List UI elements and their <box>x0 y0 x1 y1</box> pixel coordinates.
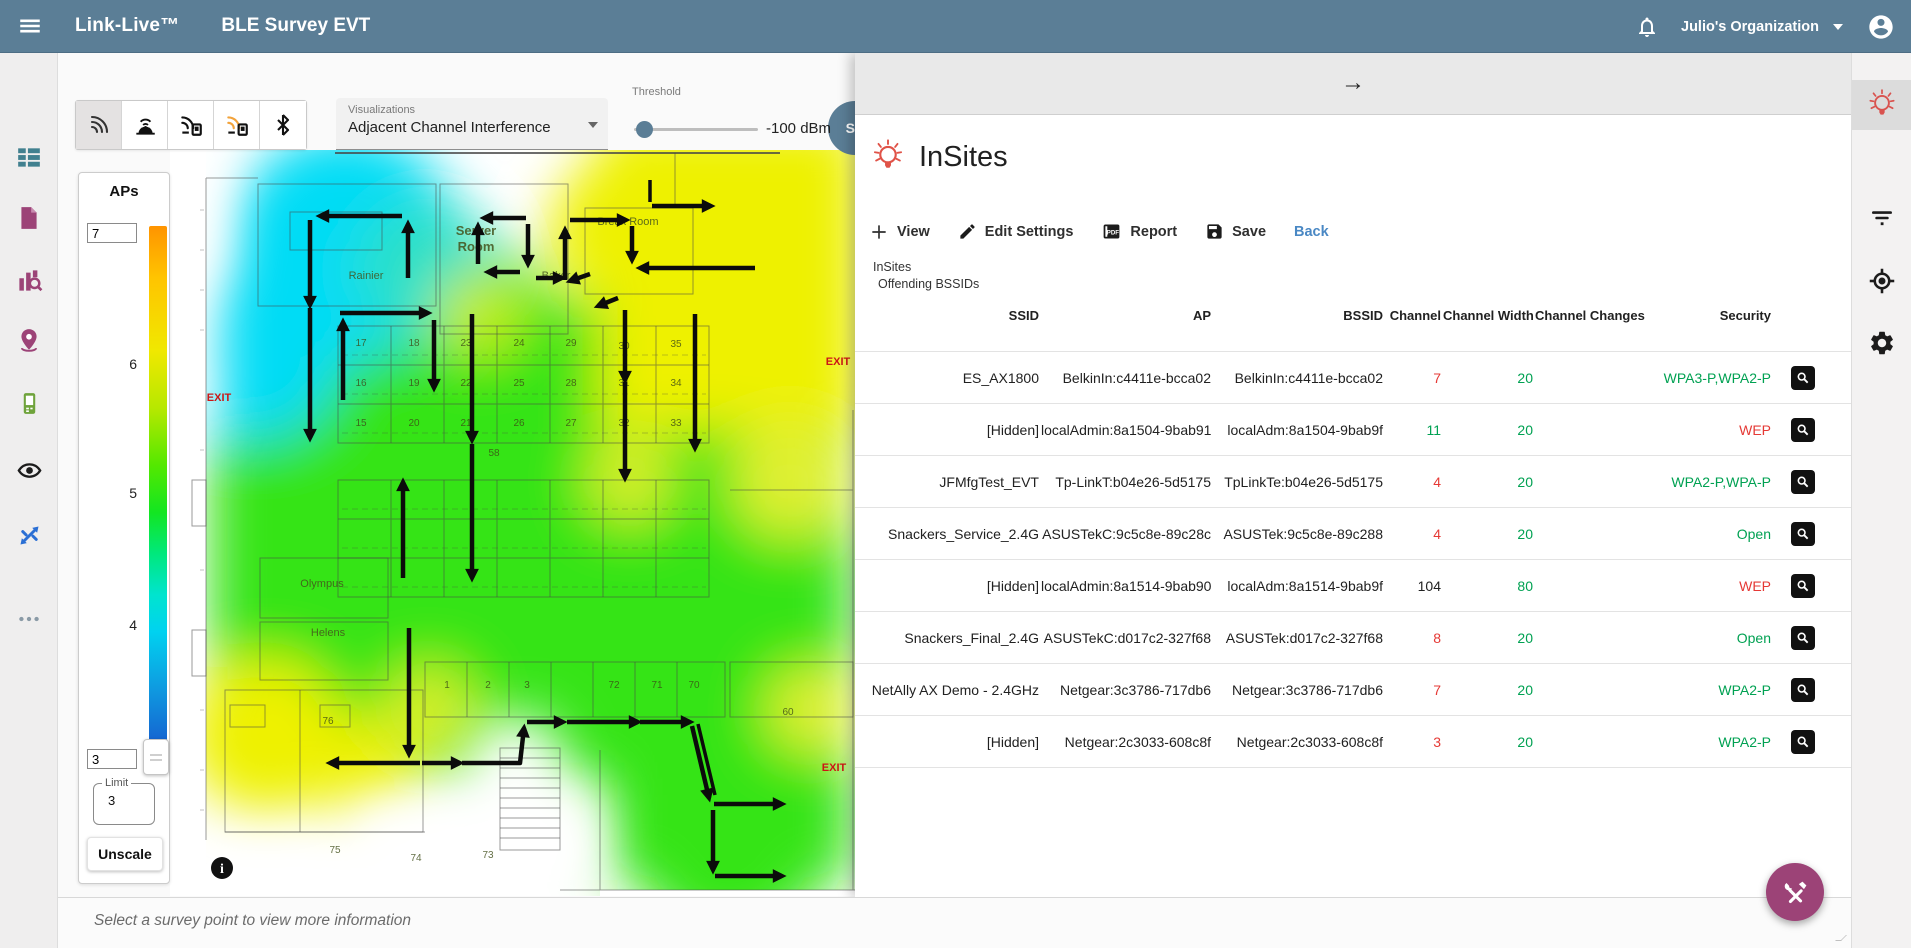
organization-selector[interactable]: Julio's Organization <box>1681 19 1819 35</box>
mode-access-points-button[interactable] <box>122 101 168 149</box>
sites-pin-icon <box>16 327 42 353</box>
cell-security: WPA2-P <box>1641 734 1773 750</box>
breadcrumb-level-1[interactable]: InSites <box>873 259 979 276</box>
save-button[interactable]: Save <box>1205 222 1266 241</box>
visualizations-label: Visualizations <box>348 104 598 116</box>
table-row[interactable]: Snackers_Final_2.4GASUSTekC:d017c2-327f6… <box>855 612 1851 664</box>
magnifier-icon <box>1795 630 1811 646</box>
cell-channel-width: 20 <box>1443 682 1535 698</box>
column-header-ap[interactable]: AP <box>1041 308 1213 323</box>
cell-ap: ASUSTekC:d017c2-327f68 <box>1041 630 1213 646</box>
mode-signal-button[interactable] <box>76 101 122 149</box>
cell-channel-width: 20 <box>1443 526 1535 542</box>
view-button[interactable]: View <box>869 222 930 242</box>
cell-channel-width: 20 <box>1443 474 1535 490</box>
svg-text:34: 34 <box>670 378 682 389</box>
scale-label: 5 <box>129 485 137 501</box>
interference-device-icon <box>224 112 250 138</box>
column-header-channel[interactable]: Channel <box>1385 308 1443 323</box>
cell-ap: localAdmin:8a1504-9bab91 <box>1041 422 1213 438</box>
pdf-report-icon: PDF <box>1101 221 1122 242</box>
cell-channel: 11 <box>1385 422 1443 438</box>
sidebar-item-analysis[interactable] <box>0 260 58 300</box>
cell-bssid: localAdm:8a1504-9bab9f <box>1213 422 1385 438</box>
cell-ssid: Snackers_Service_2.4G <box>869 526 1041 542</box>
inspect-bssid-button[interactable] <box>1791 574 1815 598</box>
svg-text:70: 70 <box>688 680 700 691</box>
bluetooth-icon <box>271 113 295 137</box>
svg-text:Rainier: Rainier <box>349 270 384 282</box>
cell-channel-width: 20 <box>1443 422 1535 438</box>
cell-ssid: [Hidden] <box>869 734 1041 750</box>
caret-down-icon[interactable] <box>1833 24 1843 30</box>
heatmap-color-scale <box>149 226 167 746</box>
cell-ssid: Snackers_Final_2.4G <box>869 630 1041 646</box>
edit-settings-button[interactable]: Edit Settings <box>958 222 1074 241</box>
scale-drag-handle[interactable] <box>143 739 169 775</box>
settings-tool-button[interactable] <box>1852 318 1911 368</box>
aps-panel-title: APs <box>79 183 169 200</box>
document-icon <box>16 205 42 231</box>
sidebar-item-more[interactable] <box>0 599 58 639</box>
limit-label: Limit <box>102 777 131 789</box>
bssid-table-rows: ES_AX1800BelkinIn:c4411e-bcca02BelkinIn:… <box>855 351 1851 768</box>
inspect-bssid-button[interactable] <box>1791 678 1815 702</box>
breadcrumb-level-2: Offending BSSIDs <box>878 276 979 293</box>
discovery-eye-icon <box>16 457 43 484</box>
cell-bssid: Netgear:2c3033-608c8f <box>1213 734 1385 750</box>
cell-security: WEP <box>1641 578 1773 594</box>
app-window: Link-Live™ BLE Survey EVT Julio's Organi… <box>0 0 1911 948</box>
svg-text:76: 76 <box>322 716 334 727</box>
svg-text:75: 75 <box>329 845 341 856</box>
svg-text:71: 71 <box>651 680 663 691</box>
access-point-icon <box>132 112 158 138</box>
svg-text:25: 25 <box>513 378 525 389</box>
column-header-channel-width[interactable]: Channel Width <box>1443 308 1535 323</box>
resize-grip[interactable] <box>1835 935 1847 941</box>
page-title: BLE Survey EVT <box>221 15 370 37</box>
cell-ssid: JFMfgTest_EVT <box>869 474 1041 490</box>
cell-channel: 7 <box>1385 682 1443 698</box>
table-row[interactable]: [Hidden]Netgear:2c3033-608c8fNetgear:2c3… <box>855 716 1851 768</box>
magnifier-icon <box>1795 578 1811 594</box>
brand-title: Link-Live™ <box>75 15 179 37</box>
svg-text:60: 60 <box>782 707 794 718</box>
more-dots-icon <box>16 606 42 632</box>
insites-bulb-icon <box>871 138 905 176</box>
sidebar-item-discovery[interactable] <box>0 450 58 490</box>
back-link[interactable]: Back <box>1294 224 1329 240</box>
cell-bssid: Netgear:3c3786-717db6 <box>1213 682 1385 698</box>
plus-icon <box>869 222 889 242</box>
cell-bssid: ASUSTek:d017c2-327f68 <box>1213 630 1385 646</box>
magnifier-icon <box>1795 526 1811 542</box>
cell-channel: 3 <box>1385 734 1443 750</box>
cell-channel: 8 <box>1385 630 1443 646</box>
menu-icon[interactable] <box>17 13 43 39</box>
cell-ssid: ES_AX1800 <box>869 370 1041 386</box>
status-message: Select a survey point to view more infor… <box>94 912 411 930</box>
svg-text:73: 73 <box>482 850 494 861</box>
locate-tool-button[interactable] <box>1852 256 1911 306</box>
table-row[interactable]: ES_AX1800BelkinIn:c4411e-bcca02BelkinIn:… <box>855 352 1851 404</box>
filter-tool-button[interactable] <box>1852 193 1911 243</box>
insites-tool-button[interactable] <box>1852 80 1911 130</box>
visualization-selected-value: Adjacent Channel Interference <box>348 119 598 136</box>
analysis-icon <box>16 267 43 294</box>
cell-security: Open <box>1641 526 1773 542</box>
chevron-down-icon <box>588 122 598 128</box>
insites-panel: → InSites View Edit Settings <box>855 53 1851 897</box>
magnifier-icon <box>1795 734 1811 750</box>
slider-thumb[interactable] <box>636 121 653 138</box>
inspect-bssid-button[interactable] <box>1791 366 1815 390</box>
svg-text:i: i <box>220 862 224 877</box>
column-header-bssid[interactable]: BSSID <box>1213 308 1385 323</box>
threshold-slider[interactable] <box>634 120 758 138</box>
map-info-icon[interactable]: i <box>211 857 233 879</box>
svg-text:EXIT: EXIT <box>822 762 847 774</box>
svg-text:28: 28 <box>565 378 577 389</box>
autotest-arrows-icon <box>16 522 43 549</box>
svg-text:58: 58 <box>488 448 500 459</box>
sidebar-item-autotest[interactable] <box>0 515 58 555</box>
svg-text:1: 1 <box>444 680 450 691</box>
scale-label: 6 <box>129 356 137 372</box>
svg-text:Helens: Helens <box>311 627 346 639</box>
magnifier-icon <box>1795 682 1811 698</box>
svg-text:2: 2 <box>485 680 491 691</box>
status-bar: Select a survey point to view more infor… <box>58 897 1851 948</box>
sidebar-item-devices[interactable] <box>0 383 58 423</box>
pencil-icon <box>958 222 977 241</box>
top-app-bar: Link-Live™ BLE Survey EVT Julio's Organi… <box>0 0 1911 53</box>
aps-scale-panel: APs 6 5 4 Limit 3 Unscale <box>78 172 170 884</box>
tester-device-icon <box>17 391 42 416</box>
notifications-bell-icon[interactable] <box>1635 15 1659 39</box>
report-button[interactable]: PDF Report <box>1101 221 1177 242</box>
panel-title: InSites <box>919 141 1008 174</box>
cell-ap: Netgear:3c3786-717db6 <box>1041 682 1213 698</box>
dashboard-list-icon <box>16 144 42 170</box>
sidebar-item-sites[interactable] <box>0 320 58 360</box>
collapse-arrow-icon[interactable]: → <box>855 69 1851 97</box>
inspect-bssid-button[interactable] <box>1791 626 1815 650</box>
cell-security: WEP <box>1641 422 1773 438</box>
visualizations-dropdown[interactable]: Visualizations Adjacent Channel Interfer… <box>336 98 608 150</box>
sidebar-item-dashboard[interactable] <box>0 137 58 177</box>
magnifier-icon <box>1795 370 1811 386</box>
tools-icon <box>1782 879 1809 906</box>
signal-icon <box>87 113 111 137</box>
cell-bssid: localAdm:8a1514-9bab9f <box>1213 578 1385 594</box>
cell-channel: 4 <box>1385 526 1443 542</box>
cell-channel: 7 <box>1385 370 1443 386</box>
mode-interference-device-button[interactable] <box>214 101 260 149</box>
cell-ap: BelkinIn:c4411e-bcca02 <box>1041 370 1213 386</box>
svg-text:24: 24 <box>513 338 525 349</box>
svg-text:15: 15 <box>355 418 367 429</box>
cell-ssid: NetAlly AX Demo - 2.4GHz <box>869 682 1041 698</box>
insites-bulb-icon <box>1867 88 1897 122</box>
magnifier-icon <box>1795 474 1811 490</box>
locate-icon <box>1868 267 1896 295</box>
aps-min-input[interactable] <box>87 749 137 769</box>
svg-text:EXIT: EXIT <box>826 356 851 368</box>
threshold-label: Threshold <box>632 86 681 98</box>
cell-bssid: ASUSTek:9c5c8e-89c288 <box>1213 526 1385 542</box>
svg-text:20: 20 <box>408 418 420 429</box>
svg-text:19: 19 <box>408 378 420 389</box>
table-row[interactable]: NetAlly AX Demo - 2.4GHzNetgear:3c3786-7… <box>855 664 1851 716</box>
table-row[interactable]: Snackers_Service_2.4GASUSTekC:9c5c8e-89c… <box>855 508 1851 560</box>
breadcrumb: InSites Offending BSSIDs <box>873 259 979 293</box>
save-icon <box>1205 222 1224 241</box>
table-row[interactable]: JFMfgTest_EVTTp-LinkT:b04e26-5d5175TpLin… <box>855 456 1851 508</box>
cell-channel-width: 80 <box>1443 578 1535 594</box>
cell-bssid: TpLinkTe:b04e26-5d5175 <box>1213 474 1385 490</box>
svg-text:17: 17 <box>355 338 367 349</box>
svg-text:16: 16 <box>355 378 367 389</box>
limit-fieldset: Limit 3 <box>93 777 155 825</box>
cell-channel-width: 20 <box>1443 630 1535 646</box>
filter-icon <box>1869 205 1895 231</box>
cell-channel: 104 <box>1385 578 1443 594</box>
survey-heatmap[interactable]: ServerRoomRainierBakerBreak RoomOlympusH… <box>170 150 855 896</box>
cell-ssid: [Hidden] <box>869 422 1041 438</box>
insites-actions: View Edit Settings PDF Report Save Back <box>869 221 1329 242</box>
cell-channel-width: 20 <box>1443 370 1535 386</box>
column-header-security[interactable]: Security <box>1641 308 1773 323</box>
cell-security: Open <box>1641 630 1773 646</box>
panel-collapse-bar[interactable]: → <box>855 53 1851 115</box>
table-header-row: SSID AP BSSID Channel Channel Width Chan… <box>855 308 1851 323</box>
limit-value: 3 <box>108 793 154 808</box>
svg-text:74: 74 <box>410 853 422 864</box>
inspect-bssid-button[interactable] <box>1791 730 1815 754</box>
cell-ap: localAdmin:8a1514-9bab90 <box>1041 578 1213 594</box>
svg-text:3: 3 <box>524 680 530 691</box>
signal-device-icon <box>178 112 204 138</box>
scale-label: 4 <box>129 617 137 633</box>
svg-text:Olympus: Olympus <box>300 578 344 590</box>
svg-text:EXIT: EXIT <box>207 392 232 404</box>
cell-ssid: [Hidden] <box>869 578 1041 594</box>
cell-channel: 4 <box>1385 474 1443 490</box>
column-header-channel-changes[interactable]: Channel Changes <box>1535 308 1641 323</box>
mode-signal-device-button[interactable] <box>168 101 214 149</box>
svg-text:27: 27 <box>565 418 577 429</box>
left-navigation-rail <box>0 53 58 948</box>
table-row[interactable]: [Hidden]localAdmin:8a1504-9bab91localAdm… <box>855 404 1851 456</box>
settings-gear-icon <box>1868 329 1896 357</box>
cell-ap: ASUSTekC:9c5c8e-89c28c <box>1041 526 1213 542</box>
sidebar-item-results[interactable] <box>0 198 58 238</box>
inspect-bssid-button[interactable] <box>1791 522 1815 546</box>
unscale-button[interactable]: Unscale <box>87 837 163 871</box>
cell-security: WPA2-P <box>1641 682 1773 698</box>
visualization-mode-group <box>75 100 307 150</box>
svg-text:18: 18 <box>408 338 420 349</box>
cell-bssid: BelkinIn:c4411e-bcca02 <box>1213 370 1385 386</box>
aps-max-input[interactable] <box>87 223 137 243</box>
svg-text:29: 29 <box>565 338 577 349</box>
table-row[interactable]: [Hidden]localAdmin:8a1514-9bab90localAdm… <box>855 560 1851 612</box>
inspect-bssid-button[interactable] <box>1791 418 1815 442</box>
svg-text:26: 26 <box>513 418 525 429</box>
column-header-ssid[interactable]: SSID <box>869 308 1041 323</box>
cell-security: WPA3-P,WPA2-P <box>1641 370 1773 386</box>
svg-text:PDF: PDF <box>1107 229 1119 236</box>
inspect-bssid-button[interactable] <box>1791 470 1815 494</box>
mode-bluetooth-button[interactable] <box>260 101 306 149</box>
svg-text:35: 35 <box>670 339 682 350</box>
right-tool-rail <box>1851 53 1911 948</box>
cell-channel-width: 20 <box>1443 734 1535 750</box>
tools-fab-button[interactable] <box>1766 863 1824 921</box>
magnifier-icon <box>1795 422 1811 438</box>
cell-ap: Tp-LinkT:b04e26-5d5175 <box>1041 474 1213 490</box>
cell-security: WPA2-P,WPA-P <box>1641 474 1773 490</box>
svg-text:72: 72 <box>608 680 620 691</box>
svg-text:33: 33 <box>670 418 682 429</box>
account-circle-icon[interactable] <box>1867 13 1895 41</box>
cell-ap: Netgear:2c3033-608c8f <box>1041 734 1213 750</box>
threshold-value: -100 dBm <box>766 120 831 137</box>
